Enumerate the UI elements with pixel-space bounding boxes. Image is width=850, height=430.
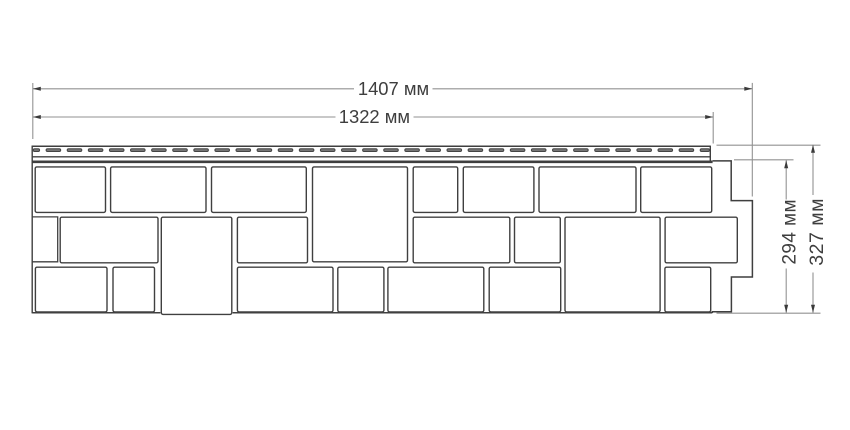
svg-text:1322 мм: 1322 мм: [339, 106, 410, 127]
svg-text:327 мм: 327 мм: [806, 198, 828, 266]
svg-text:294 мм: 294 мм: [780, 199, 801, 265]
svg-text:1407 мм: 1407 мм: [358, 78, 429, 99]
